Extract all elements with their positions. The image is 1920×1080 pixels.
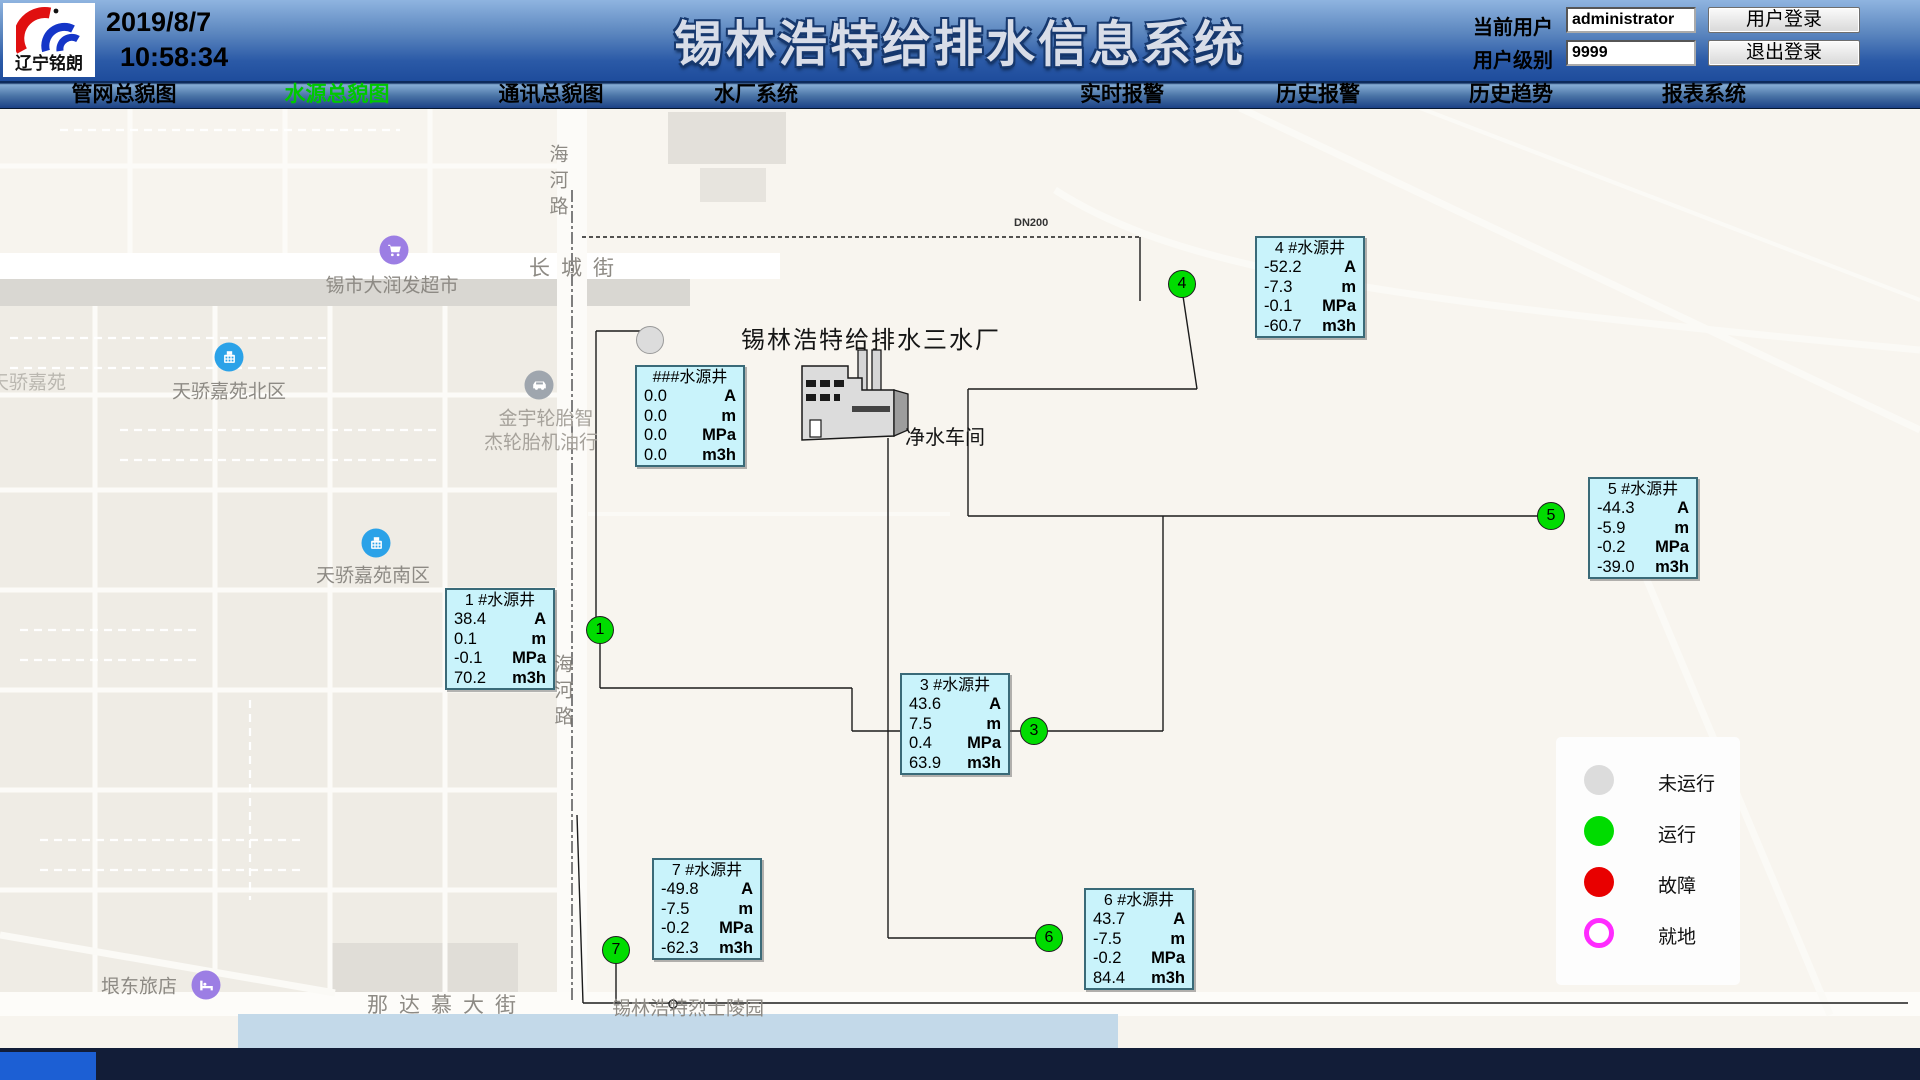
building-icon bbox=[362, 529, 391, 558]
measurement-unit: MPa bbox=[719, 919, 753, 939]
measurement-unit: m3h bbox=[719, 939, 753, 959]
measurement-value: -5.9 bbox=[1597, 519, 1625, 539]
nav-item-7[interactable]: 报表系统 bbox=[1662, 82, 1746, 107]
measurement-unit: MPa bbox=[1151, 949, 1185, 969]
measurement-value: -44.3 bbox=[1597, 499, 1635, 519]
measurement-value: 63.9 bbox=[909, 754, 941, 774]
nav-item-1[interactable]: 水源总貌图 bbox=[285, 82, 390, 107]
well-box-well-7[interactable]: 7 #水源井-49.8A-7.5m-0.2MPa-62.3m3h bbox=[652, 858, 762, 960]
measurement-value: -0.1 bbox=[1264, 297, 1292, 317]
map-label: 那达慕大街 bbox=[367, 989, 527, 1019]
nav-item-2[interactable]: 通讯总貌图 bbox=[499, 82, 604, 107]
measurement-unit: A bbox=[989, 695, 1001, 715]
well-measurement-row: -5.9m bbox=[1590, 519, 1696, 539]
measurement-value: 0.0 bbox=[644, 407, 667, 427]
measurement-value: 0.0 bbox=[644, 446, 667, 466]
well-title: 5 #水源井 bbox=[1590, 479, 1696, 499]
scada-screen: { "header": { "logo_text": "辽宁铭朗", "date… bbox=[0, 0, 1920, 1080]
well-status-circle-well-1[interactable]: 1 bbox=[586, 616, 614, 644]
measurement-value: -49.8 bbox=[661, 880, 699, 900]
user-level-label: 用户级别 bbox=[1473, 44, 1553, 73]
map-label: 金宇轮胎智 bbox=[498, 404, 593, 431]
well-measurement-row: -60.7m3h bbox=[1257, 317, 1363, 337]
well-measurement-row: -7.3m bbox=[1257, 278, 1363, 298]
nav-item-3[interactable]: 水厂系统 bbox=[714, 82, 798, 107]
well-measurement-row: -0.1MPa bbox=[1257, 297, 1363, 317]
car-icon bbox=[525, 371, 554, 400]
legend-label: 故障 bbox=[1658, 871, 1696, 898]
well-measurement-row: -39.0m3h bbox=[1590, 558, 1696, 578]
measurement-unit: m bbox=[1170, 930, 1185, 950]
measurement-unit: A bbox=[1677, 499, 1689, 519]
measurement-value: 0.1 bbox=[454, 630, 477, 650]
well-status-circle-well-4[interactable]: 4 bbox=[1168, 270, 1196, 298]
well-measurement-row: -7.5m bbox=[1086, 930, 1192, 950]
measurement-value: -7.3 bbox=[1264, 278, 1292, 298]
well-box-well-4[interactable]: 4 #水源井-52.2A-7.3m-0.1MPa-60.7m3h bbox=[1255, 236, 1365, 338]
well-measurement-row: -62.3m3h bbox=[654, 939, 760, 959]
well-title: 6 #水源井 bbox=[1086, 890, 1192, 910]
measurement-unit: A bbox=[1344, 258, 1356, 278]
current-user-input[interactable] bbox=[1566, 7, 1696, 33]
measurement-unit: m bbox=[721, 407, 736, 427]
measurement-unit: m bbox=[986, 715, 1001, 735]
measurement-unit: A bbox=[1173, 910, 1185, 930]
user-level-input[interactable] bbox=[1566, 40, 1696, 66]
pipe-diameter-label: DN200 bbox=[1014, 217, 1048, 229]
map-label: 锡林浩特烈士陵园 bbox=[612, 994, 764, 1021]
well-box-well-5[interactable]: 5 #水源井-44.3A-5.9m-0.2MPa-39.0m3h bbox=[1588, 477, 1698, 579]
current-user-label: 当前用户 bbox=[1473, 11, 1553, 40]
current-time: 10:58:34 bbox=[106, 40, 228, 75]
measurement-unit: MPa bbox=[967, 734, 1001, 754]
measurement-value: -0.2 bbox=[1597, 538, 1625, 558]
well-measurement-row: 0.0m bbox=[637, 407, 743, 427]
well-measurement-row: -52.2A bbox=[1257, 258, 1363, 278]
map-label: 杰轮胎机油行 bbox=[484, 428, 598, 455]
well-measurement-row: -0.1MPa bbox=[447, 649, 553, 669]
legend-row: 就地 bbox=[1556, 908, 1740, 959]
legend-row: 故障 bbox=[1556, 857, 1740, 908]
measurement-value: 0.0 bbox=[644, 426, 667, 446]
current-date: 2019/8/7 bbox=[106, 5, 228, 40]
measurement-value: 7.5 bbox=[909, 715, 932, 735]
measurement-value: 0.4 bbox=[909, 734, 932, 754]
measurement-value: 70.2 bbox=[454, 669, 486, 689]
well-box-well-1[interactable]: 1 #水源井38.4A0.1m-0.1MPa70.2m3h bbox=[445, 588, 555, 690]
bottom-bar bbox=[0, 1048, 1920, 1080]
bed-icon bbox=[192, 971, 221, 1000]
header-bar: 辽宁铭朗 2019/8/7 10:58:34 锡林浩特给排水信息系统 当前用户 … bbox=[0, 0, 1920, 82]
well-box-well-6[interactable]: 6 #水源井43.7A-7.5m-0.2MPa84.4m3h bbox=[1084, 888, 1194, 990]
map-label: 锡市大润发超市 bbox=[325, 271, 458, 298]
measurement-value: -0.2 bbox=[661, 919, 689, 939]
well-measurement-row: 0.0A bbox=[637, 387, 743, 407]
measurement-value: -62.3 bbox=[661, 939, 699, 959]
map-label: 海河路 bbox=[544, 144, 571, 222]
legend-row: 未运行 bbox=[1556, 755, 1740, 806]
measurement-unit: MPa bbox=[702, 426, 736, 446]
measurement-value: 43.6 bbox=[909, 695, 941, 715]
well-measurement-row: 70.2m3h bbox=[447, 669, 553, 689]
well-measurement-row: 0.0m3h bbox=[637, 446, 743, 466]
well-measurement-row: -44.3A bbox=[1590, 499, 1696, 519]
measurement-unit: A bbox=[724, 387, 736, 407]
measurement-value: -60.7 bbox=[1264, 317, 1302, 337]
measurement-value: 0.0 bbox=[644, 387, 667, 407]
map-label: 天骄嘉苑 bbox=[0, 368, 66, 395]
measurement-unit: MPa bbox=[1655, 538, 1689, 558]
well-measurement-row: 63.9m3h bbox=[902, 754, 1008, 774]
measurement-unit: m3h bbox=[512, 669, 546, 689]
logo-text: 辽宁铭朗 bbox=[15, 55, 83, 73]
well-measurement-row: 43.6A bbox=[902, 695, 1008, 715]
measurement-unit: m3h bbox=[1151, 969, 1185, 989]
building-icon bbox=[215, 343, 244, 372]
well-title: 4 #水源井 bbox=[1257, 238, 1363, 258]
legend-label: 未运行 bbox=[1658, 769, 1715, 796]
map-label: 垠东旅店 bbox=[101, 972, 177, 999]
legend-status-dot bbox=[1584, 816, 1614, 846]
well-status-circle-well-3[interactable]: 3 bbox=[1020, 717, 1048, 745]
measurement-unit: m3h bbox=[967, 754, 1001, 774]
well-status-circle-unnamed[interactable] bbox=[636, 326, 664, 354]
well-title: 7 #水源井 bbox=[654, 860, 760, 880]
measurement-unit: MPa bbox=[1322, 297, 1356, 317]
well-measurement-row: -0.2MPa bbox=[1590, 538, 1696, 558]
nav-item-0[interactable]: 管网总貌图 bbox=[72, 82, 177, 107]
measurement-value: -52.2 bbox=[1264, 258, 1302, 278]
status-legend: 未运行运行故障就地 bbox=[1556, 737, 1740, 985]
well-status-circle-well-5[interactable]: 5 bbox=[1537, 502, 1565, 530]
well-measurement-row: -0.2MPa bbox=[1086, 949, 1192, 969]
logo-mark bbox=[16, 3, 82, 55]
workshop-label: 净水车间 bbox=[905, 421, 985, 450]
legend-status-dot bbox=[1584, 918, 1614, 948]
well-measurement-row: -7.5m bbox=[654, 900, 760, 920]
well-measurement-row: 43.7A bbox=[1086, 910, 1192, 930]
well-title: 1 #水源井 bbox=[447, 590, 553, 610]
measurement-unit: m bbox=[1674, 519, 1689, 539]
measurement-value: -0.1 bbox=[454, 649, 482, 669]
measurement-unit: A bbox=[534, 610, 546, 630]
well-measurement-row: 0.0MPa bbox=[637, 426, 743, 446]
measurement-unit: MPa bbox=[512, 649, 546, 669]
legend-status-dot bbox=[1584, 765, 1614, 795]
navbar: 管网总貌图水源总貌图通讯总貌图水厂系统实时报警历史报警历史趋势报表系统 bbox=[0, 81, 1920, 109]
cart-icon bbox=[380, 236, 409, 265]
well-measurement-row: 0.1m bbox=[447, 630, 553, 650]
well-status-circle-well-6[interactable]: 6 bbox=[1035, 924, 1063, 952]
well-measurement-row: 7.5m bbox=[902, 715, 1008, 735]
legend-row: 运行 bbox=[1556, 806, 1740, 857]
measurement-value: -7.5 bbox=[1093, 930, 1121, 950]
measurement-value: 43.7 bbox=[1093, 910, 1125, 930]
well-measurement-row: -0.2MPa bbox=[654, 919, 760, 939]
map-label: 天骄嘉苑南区 bbox=[316, 561, 430, 588]
well-measurement-row: 84.4m3h bbox=[1086, 969, 1192, 989]
well-box-well-3[interactable]: 3 #水源井43.6A7.5m0.4MPa63.9m3h bbox=[900, 673, 1010, 775]
measurement-value: 38.4 bbox=[454, 610, 486, 630]
measurement-unit: m3h bbox=[1655, 558, 1689, 578]
well-measurement-row: 0.4MPa bbox=[902, 734, 1008, 754]
legend-label: 运行 bbox=[1658, 820, 1696, 847]
legend-label: 就地 bbox=[1658, 922, 1696, 949]
plant-name-label: 锡林浩特给排水三水厂 bbox=[741, 320, 1001, 355]
app-title: 锡林浩特给排水信息系统 bbox=[674, 5, 1246, 76]
nav-item-4[interactable]: 实时报警 bbox=[1080, 82, 1164, 107]
well-box-unnamed[interactable]: ###水源井0.0A0.0m0.0MPa0.0m3h bbox=[635, 365, 745, 467]
legend-status-dot bbox=[1584, 867, 1614, 897]
map-label: 长城街 bbox=[529, 252, 625, 282]
measurement-value: -39.0 bbox=[1597, 558, 1635, 578]
nav-item-6[interactable]: 历史趋势 bbox=[1469, 82, 1553, 107]
logout-button[interactable]: 退出登录 bbox=[1708, 40, 1860, 66]
login-button[interactable]: 用户登录 bbox=[1708, 7, 1860, 33]
well-title: 3 #水源井 bbox=[902, 675, 1008, 695]
measurement-unit: m bbox=[738, 900, 753, 920]
measurement-unit: m bbox=[1341, 278, 1356, 298]
company-logo: 辽宁铭朗 bbox=[3, 3, 95, 77]
well-title: ###水源井 bbox=[637, 367, 743, 387]
measurement-value: -7.5 bbox=[661, 900, 689, 920]
map-label: 天骄嘉苑北区 bbox=[172, 377, 286, 404]
well-measurement-row: -49.8A bbox=[654, 880, 760, 900]
measurement-value: -0.2 bbox=[1093, 949, 1121, 969]
measurement-unit: m3h bbox=[702, 446, 736, 466]
datetime: 2019/8/7 10:58:34 bbox=[106, 5, 228, 75]
well-status-circle-well-7[interactable]: 7 bbox=[602, 936, 630, 964]
measurement-unit: m3h bbox=[1322, 317, 1356, 337]
well-measurement-row: 38.4A bbox=[447, 610, 553, 630]
nav-item-5[interactable]: 历史报警 bbox=[1276, 82, 1360, 107]
measurement-unit: A bbox=[741, 880, 753, 900]
measurement-value: 84.4 bbox=[1093, 969, 1125, 989]
measurement-unit: m bbox=[531, 630, 546, 650]
